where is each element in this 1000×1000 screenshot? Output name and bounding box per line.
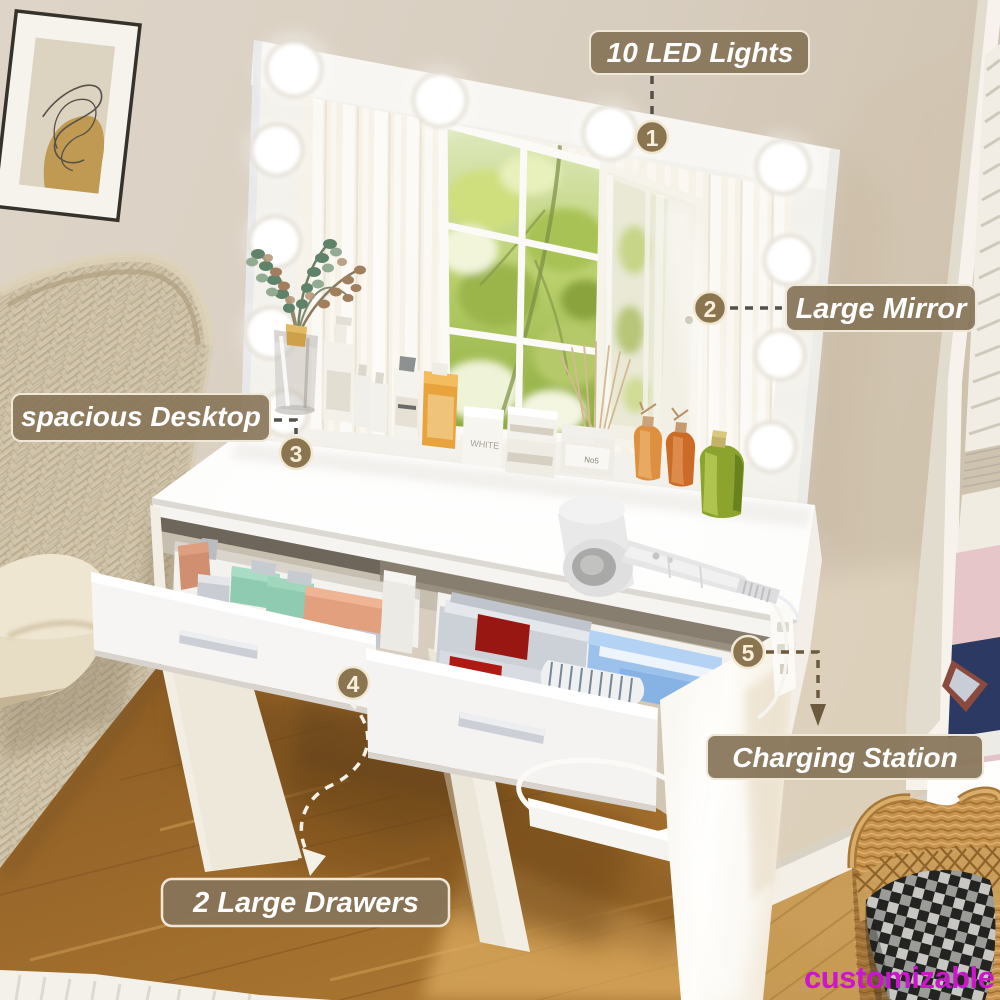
svg-text:customizable: customizable — [804, 960, 995, 995]
svg-text:2 Large Drawers: 2 Large Drawers — [192, 887, 419, 919]
svg-text:Charging Station: Charging Station — [732, 742, 958, 773]
svg-text:4: 4 — [347, 671, 360, 697]
svg-text:Large Mirror: Large Mirror — [796, 293, 969, 325]
svg-text:10 LED Lights: 10 LED Lights — [607, 37, 794, 68]
svg-text:1: 1 — [646, 125, 659, 151]
svg-text:spacious Desktop: spacious Desktop — [21, 401, 261, 432]
svg-text:3: 3 — [290, 441, 303, 467]
svg-text:2: 2 — [704, 296, 717, 322]
svg-text:5: 5 — [742, 640, 755, 666]
svg-text:No5: No5 — [584, 455, 600, 466]
